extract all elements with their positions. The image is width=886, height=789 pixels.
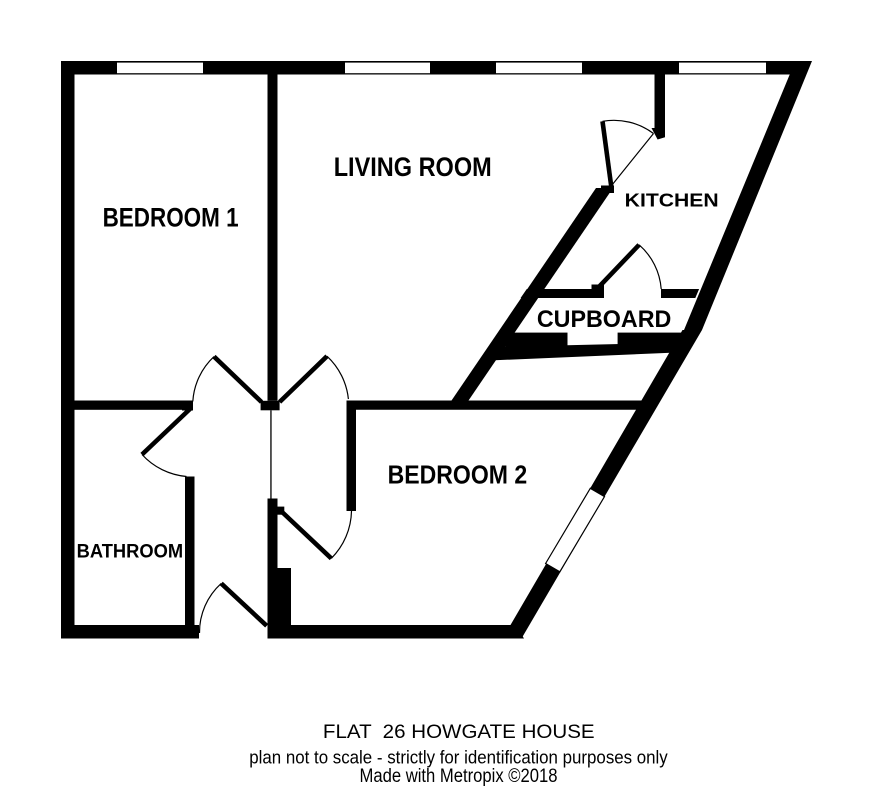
svg-text:KITCHEN: KITCHEN <box>625 189 719 210</box>
svg-text:LIVING ROOM: LIVING ROOM <box>334 152 492 182</box>
svg-text:Made with Metropix ©2018: Made with Metropix ©2018 <box>360 766 558 787</box>
svg-text:BATHROOM: BATHROOM <box>77 542 184 563</box>
svg-text:BEDROOM 2: BEDROOM 2 <box>388 462 528 490</box>
svg-text:CUPBOARD: CUPBOARD <box>537 306 672 333</box>
svg-text:plan not to scale - strictly f: plan not to scale - strictly for identif… <box>249 746 668 767</box>
svg-text:FLAT 26 HOWGATE HOUSE: FLAT 26 HOWGATE HOUSE <box>323 722 595 743</box>
svg-text:BEDROOM 1: BEDROOM 1 <box>103 203 239 233</box>
